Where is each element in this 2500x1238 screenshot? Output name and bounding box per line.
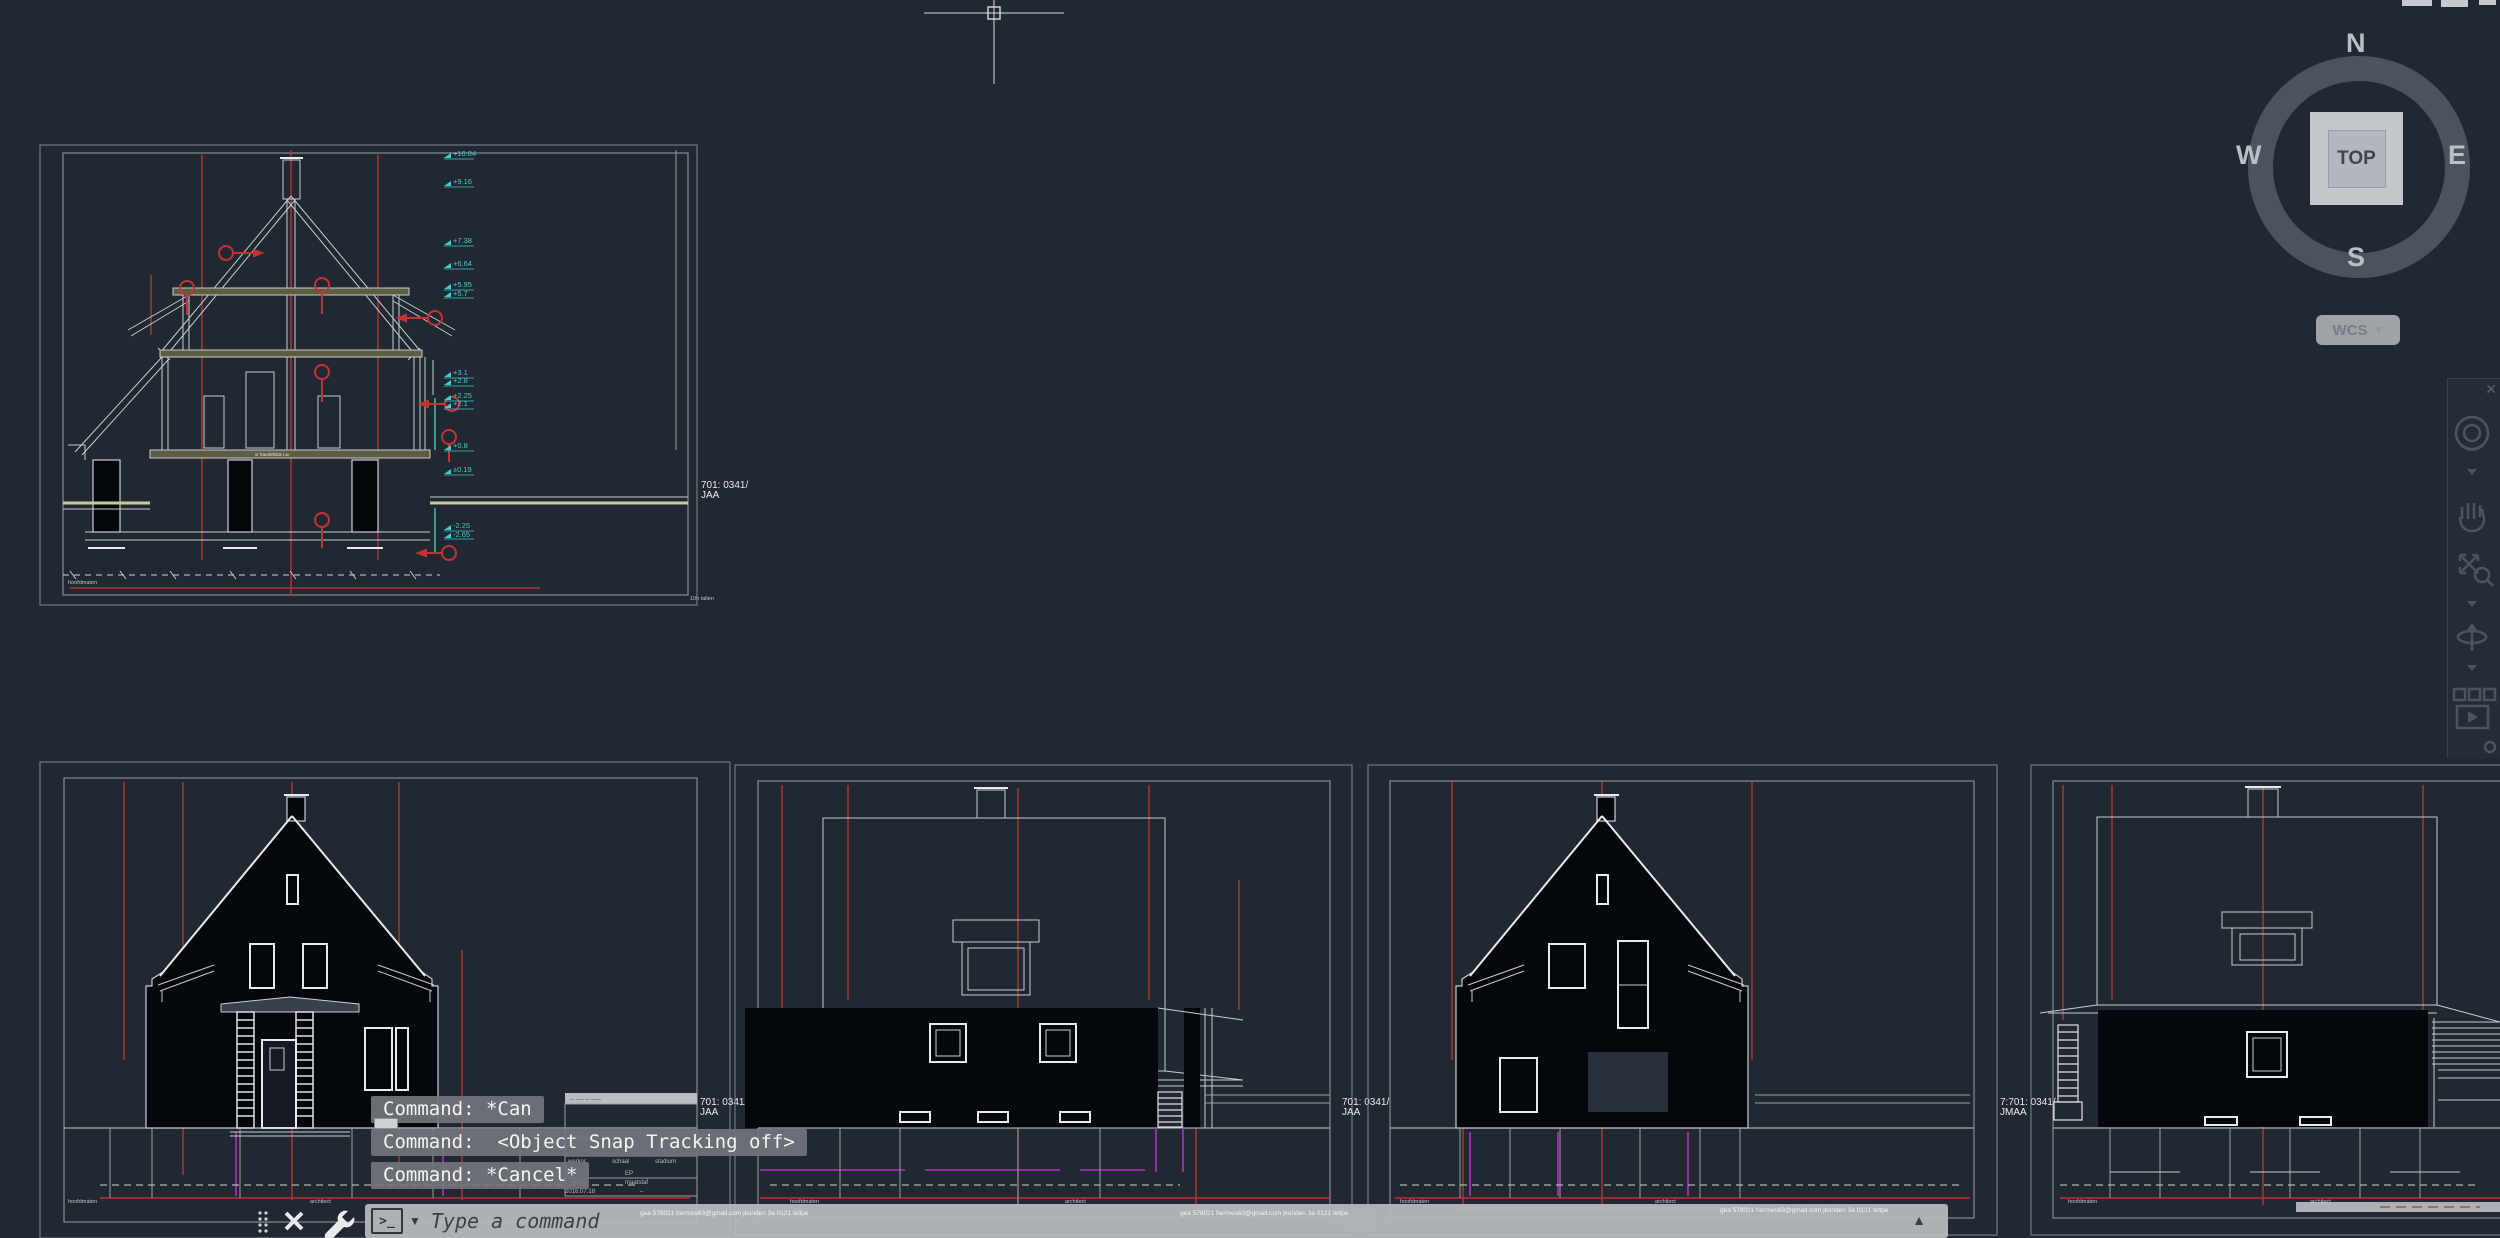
dynamic-input-icon — [374, 1118, 398, 1129]
watermark-text: gea 578021 hermes63@gmail.com jkunden 3a… — [1720, 1207, 1889, 1214]
viewcube-south[interactable]: S — [2347, 242, 2365, 273]
drawing-area[interactable]: vr handelblok t.w. hoofdmaten — [0, 0, 2500, 1238]
viewcube-north[interactable]: N — [2346, 28, 2366, 59]
autocad-canvas[interactable]: vr handelblok t.w. hoofdmaten — [0, 0, 2500, 1238]
viewport-rear-elevation: hoofdmaten architect 7:701: 0341/ JMAA — [1368, 765, 2056, 1235]
zoom-flyout-icon[interactable] — [2467, 601, 2477, 607]
viewcube-top-face[interactable]: TOP — [2310, 112, 2403, 205]
sheet-label-vp1-2: JAA — [700, 1107, 719, 1118]
slab-note: vr handelblok t.w. — [255, 452, 290, 457]
svg-text:+2.1: +2.1 — [453, 399, 468, 408]
svg-text:+6.64: +6.64 — [453, 259, 472, 268]
command-prompt-icon: >_ — [371, 1208, 403, 1234]
svg-text:EP: EP — [625, 1171, 633, 1177]
svg-text:+5.95: +5.95 — [453, 280, 472, 289]
close-command-bar-icon[interactable] — [286, 1213, 302, 1229]
viewport-section: vr handelblok t.w. hoofdmaten — [40, 145, 748, 605]
viewcube-east[interactable]: E — [2448, 140, 2466, 171]
command-bar-grip[interactable] — [250, 1203, 370, 1238]
viewcube-west[interactable]: W — [2236, 140, 2261, 171]
command-history-line-2: Command: <Object Snap Tracking off> — [371, 1129, 807, 1156]
close-icon[interactable] — [2479, 0, 2496, 5]
crosshair-cursor — [924, 0, 1064, 84]
command-input[interactable]: >_ ▼ Type a command ▲ — [365, 1204, 1948, 1238]
svg-text:±0.19: ±0.19 — [453, 465, 472, 474]
svg-text:stadium: stadium — [655, 1159, 676, 1165]
sheet-note: 10h tallen — [690, 596, 714, 602]
command-history-line-3: Command: *Cancel* — [371, 1162, 589, 1189]
viewcube-top-label: TOP — [2337, 148, 2376, 170]
expand-history-icon[interactable]: ▲ — [1912, 1212, 1926, 1228]
svg-text:+2.8: +2.8 — [453, 376, 468, 385]
minimize-icon[interactable] — [2402, 0, 2432, 6]
svg-text:+0.8: +0.8 — [453, 441, 468, 450]
svg-text:+7.38: +7.38 — [453, 236, 472, 245]
svg-text:+5.7: +5.7 — [453, 289, 468, 298]
chevron-down-icon: ▼ — [2374, 325, 2384, 336]
orbit-flyout-icon[interactable] — [2467, 665, 2477, 671]
navigation-wheel-icon[interactable] — [2456, 417, 2488, 449]
svg-text:+9.16: +9.16 — [453, 177, 472, 186]
svg-text:hoofdmaten: hoofdmaten — [2068, 1199, 2097, 1205]
svg-text:-- ---- -- -----: -- ---- -- ----- — [570, 1097, 601, 1103]
pan-hand-icon[interactable] — [2460, 503, 2484, 531]
wheel-flyout-icon[interactable] — [2467, 469, 2477, 475]
svg-text:-2.65: -2.65 — [453, 530, 470, 539]
viewport-side-elevation-right: hoofdmaten architect — [2031, 765, 2500, 1235]
svg-text:2016.07.18: 2016.07.18 — [565, 1189, 596, 1195]
svg-text:–: – — [640, 1189, 644, 1195]
navigation-bar[interactable]: ✕ — [2447, 378, 2500, 758]
sheet-label-section-2: JAA — [701, 490, 720, 501]
section-footer-label: hoofdmaten — [68, 580, 97, 586]
elevation-marks: +10.04 +9.16 +7.38 +6.64 +5.95 +5.7 +3.1… — [444, 149, 476, 539]
showmotion-icon[interactable] — [2454, 689, 2495, 728]
wcs-label: WCS — [2333, 322, 2368, 339]
command-placeholder: Type a command — [431, 1209, 600, 1233]
watermark-text: gea 578021 hermes63@gmail.com jkunden 3a… — [640, 1210, 809, 1217]
customize-wrench-icon[interactable] — [325, 1211, 355, 1238]
sheet-label-vp3-2: JMAA — [2000, 1107, 2027, 1118]
svg-text:maatstaf: maatstaf — [625, 1180, 648, 1186]
zoom-extents-icon[interactable] — [2460, 555, 2493, 586]
svg-text:schaal: schaal — [612, 1159, 629, 1165]
wcs-dropdown[interactable]: WCS ▼ — [2316, 315, 2400, 345]
watermark-text: gea 578021 hermes63@gmail.com jkunden 3a… — [1180, 1210, 1349, 1217]
navbar-settings-icon[interactable] — [2485, 742, 2495, 752]
svg-text:+10.04: +10.04 — [453, 149, 476, 158]
svg-text:hoofdmaten: hoofdmaten — [68, 1199, 97, 1205]
orbit-icon[interactable] — [2458, 625, 2486, 651]
recent-commands-icon[interactable]: ▼ — [409, 1214, 421, 1228]
sheet-label-vp2-2: JAA — [1342, 1107, 1361, 1118]
restore-icon[interactable] — [2441, 0, 2468, 7]
svg-text:-2.25: -2.25 — [453, 521, 470, 530]
close-navbar-icon[interactable]: ✕ — [2485, 381, 2497, 398]
viewport-side-elevation-left: hoofdmaten architect 701: 0341/ JAA — [735, 765, 1389, 1235]
